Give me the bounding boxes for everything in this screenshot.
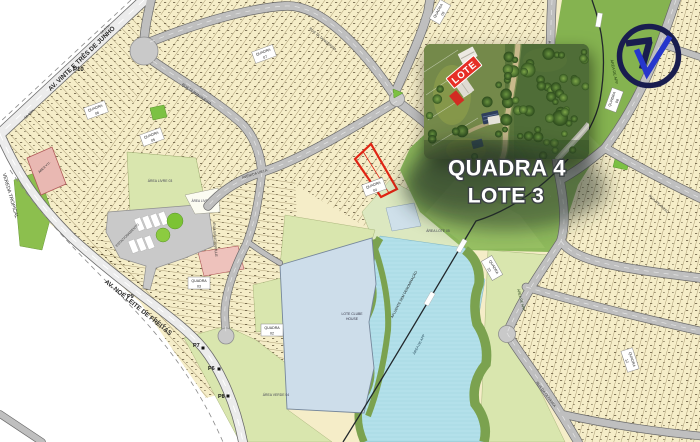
svg-text:P7: P7 [193, 343, 200, 349]
svg-text:LOTE CLUBE: LOTE CLUBE [341, 312, 363, 316]
svg-text:P8: P8 [218, 394, 225, 400]
svg-text:P6: P6 [208, 366, 215, 372]
svg-text:P10: P10 [73, 67, 84, 73]
svg-text:ÁREA LOTE 05: ÁREA LOTE 05 [426, 229, 450, 233]
svg-text:LOTE 3: LOTE 3 [468, 185, 545, 208]
svg-text:HOUSE: HOUSE [346, 317, 359, 321]
svg-text:QUADRA: QUADRA [264, 326, 280, 330]
svg-text:03: 03 [197, 285, 201, 289]
svg-text:ÁREA VERDE 04: ÁREA VERDE 04 [263, 393, 289, 397]
svg-text:ÁREA LIVRE 03: ÁREA LIVRE 03 [148, 179, 173, 183]
svg-text:02: 02 [270, 332, 274, 336]
svg-text:QUADRA: QUADRA [191, 279, 207, 283]
svg-text:QUADRA 4: QUADRA 4 [448, 156, 566, 181]
